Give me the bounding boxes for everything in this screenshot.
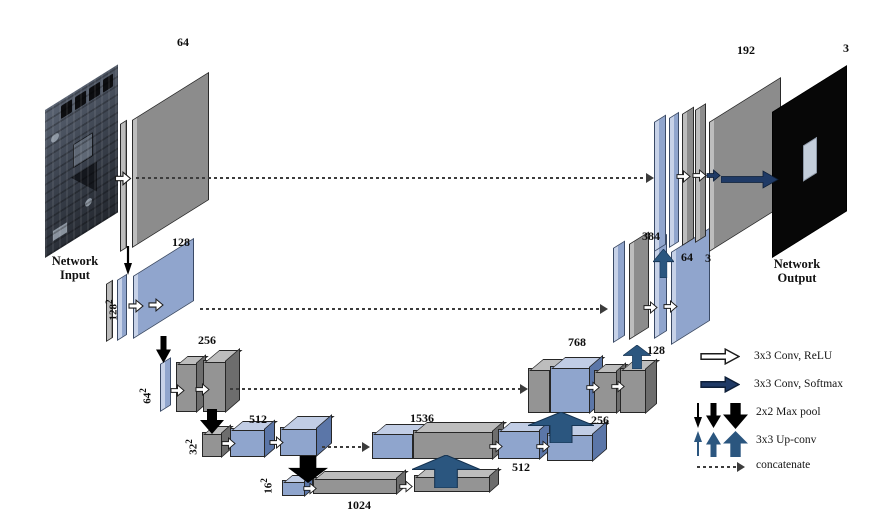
enc5-channels-label: 1024 bbox=[333, 499, 385, 511]
output-caption: Network Output bbox=[751, 257, 843, 285]
conv-relu-arrow-icon bbox=[700, 348, 740, 365]
conv-relu-arrow-icon bbox=[148, 298, 164, 312]
conv-relu-arrow-icon bbox=[663, 300, 678, 313]
maxpool-arrow-thin-icon bbox=[693, 402, 703, 428]
output-caption-line2: Output bbox=[751, 271, 843, 285]
conv-relu-arrow-icon bbox=[114, 171, 132, 186]
enc4-layer-pool bbox=[202, 432, 222, 457]
concat-line-level2 bbox=[200, 308, 600, 310]
enc4-size-base: 32 bbox=[188, 444, 200, 455]
conv-relu-arrow-icon bbox=[692, 169, 707, 182]
enc2-size-exp: 2 bbox=[104, 299, 114, 304]
output-channels-label: 3 bbox=[836, 42, 856, 54]
dec3-concat-skip-part bbox=[528, 368, 550, 413]
network-output-image bbox=[772, 65, 847, 258]
maxpool-arrow-medium-icon bbox=[706, 403, 721, 428]
conv-softmax-arrow-long-icon bbox=[721, 170, 779, 189]
enc2-size-base: 128 bbox=[108, 304, 120, 321]
conv-relu-arrow-icon bbox=[195, 383, 210, 396]
upconv-arrow-medium-icon bbox=[706, 432, 721, 457]
maxpool-arrow-large-icon bbox=[200, 409, 224, 434]
conv-relu-arrow-icon bbox=[676, 170, 691, 183]
maxpool-arrow-large-icon bbox=[723, 403, 748, 429]
enc3-channels-label: 256 bbox=[189, 334, 225, 346]
dec2-concat-upconv-part bbox=[613, 241, 625, 343]
legend-label-conv-softmax: 3x3 Conv, Softmax bbox=[754, 378, 843, 390]
pcb-texture bbox=[45, 64, 118, 258]
dec2-concat-skip-part bbox=[629, 232, 649, 340]
dec4-concat-label: 1536 bbox=[398, 412, 446, 424]
enc4-size-label: 322 bbox=[184, 431, 196, 463]
legend-label-conv-relu: 3x3 Conv, ReLU bbox=[754, 350, 832, 362]
upconv-arrow-xlarge-icon bbox=[412, 455, 480, 488]
dec4-concat-skip-part bbox=[372, 432, 413, 459]
enc2-channels-label: 128 bbox=[162, 236, 200, 248]
enc3-size-label: 642 bbox=[138, 380, 150, 412]
dec3-concat-label: 768 bbox=[553, 336, 601, 348]
unet-architecture-diagram: Network Input 64 1282 128 642 256 bbox=[0, 0, 888, 529]
enc3-size-exp: 2 bbox=[138, 388, 148, 393]
enc3-size-base: 64 bbox=[142, 393, 154, 404]
enc5-size-base: 16 bbox=[263, 483, 275, 494]
concat-line-level4 bbox=[322, 446, 362, 448]
output-caption-line1: Network bbox=[751, 257, 843, 271]
enc2-layer-conv2 bbox=[133, 238, 194, 339]
maxpool-arrow-xlarge-icon bbox=[288, 456, 328, 483]
conv-softmax-arrow-small-icon bbox=[706, 169, 721, 182]
enc1-layer-wide bbox=[132, 72, 209, 248]
conv-relu-arrow-icon bbox=[221, 437, 236, 450]
conv-relu-arrow-icon bbox=[128, 299, 144, 313]
dec1-concat-label: 192 bbox=[726, 44, 766, 56]
maxpool-arrow-medium-icon bbox=[156, 336, 171, 363]
conv-softmax-arrow-icon bbox=[700, 376, 740, 393]
conv-relu-arrow-icon bbox=[303, 482, 317, 495]
input-caption: Network Input bbox=[28, 254, 122, 282]
upconv-arrow-large-icon bbox=[723, 431, 748, 457]
legend-label-concatenate: concatenate bbox=[756, 459, 810, 471]
legend-label-upconv: 3x3 Up-conv bbox=[756, 434, 816, 446]
concat-line-level1 bbox=[136, 177, 646, 179]
input-caption-line2: Input bbox=[28, 268, 122, 282]
dec4-upconv-label: 256 bbox=[582, 414, 618, 426]
dec3-concat-upconv-part bbox=[550, 366, 590, 413]
upconv-arrow-thin-icon bbox=[693, 431, 703, 457]
upconv-arrow-small-icon bbox=[653, 249, 674, 278]
concat-arrow-icon bbox=[697, 466, 737, 468]
enc4-channels-label: 512 bbox=[240, 413, 276, 425]
maxpool-arrow-thin-icon bbox=[123, 245, 133, 275]
dec2-concat-label: 384 bbox=[633, 230, 669, 242]
conv-relu-arrow-icon bbox=[586, 381, 600, 394]
dec1-out-label: 3 bbox=[699, 252, 717, 264]
legend-label-maxpool: 2x2 Max pool bbox=[756, 406, 821, 418]
enc1-channels-label: 64 bbox=[167, 36, 199, 48]
dec1-layer-out bbox=[709, 77, 781, 252]
enc5-size-exp: 2 bbox=[259, 478, 269, 483]
concat-line-level3 bbox=[230, 388, 520, 390]
conv-relu-arrow-icon bbox=[399, 480, 413, 493]
dec3-upconv-label: 128 bbox=[640, 344, 672, 356]
conv-relu-arrow-icon bbox=[643, 301, 658, 314]
conv-relu-arrow-icon bbox=[170, 384, 185, 397]
conv-relu-arrow-icon bbox=[536, 440, 550, 453]
enc4-layer-conv2 bbox=[280, 427, 317, 456]
conv-relu-arrow-icon bbox=[489, 440, 503, 453]
dec4-conv-label: 512 bbox=[503, 461, 539, 473]
conv-relu-arrow-icon bbox=[611, 380, 625, 393]
dec2-upconv-label: 64 bbox=[674, 251, 700, 263]
enc2-size-label: 1282 bbox=[104, 292, 116, 328]
enc5-size-label: 162 bbox=[259, 470, 271, 502]
enc4-size-exp: 2 bbox=[184, 439, 194, 444]
dec2-layer-conv2 bbox=[671, 228, 710, 345]
network-input-image bbox=[45, 64, 118, 258]
conv-relu-arrow-icon bbox=[269, 436, 284, 449]
input-caption-line1: Network bbox=[28, 254, 122, 268]
output-segmentation-region bbox=[803, 137, 817, 182]
